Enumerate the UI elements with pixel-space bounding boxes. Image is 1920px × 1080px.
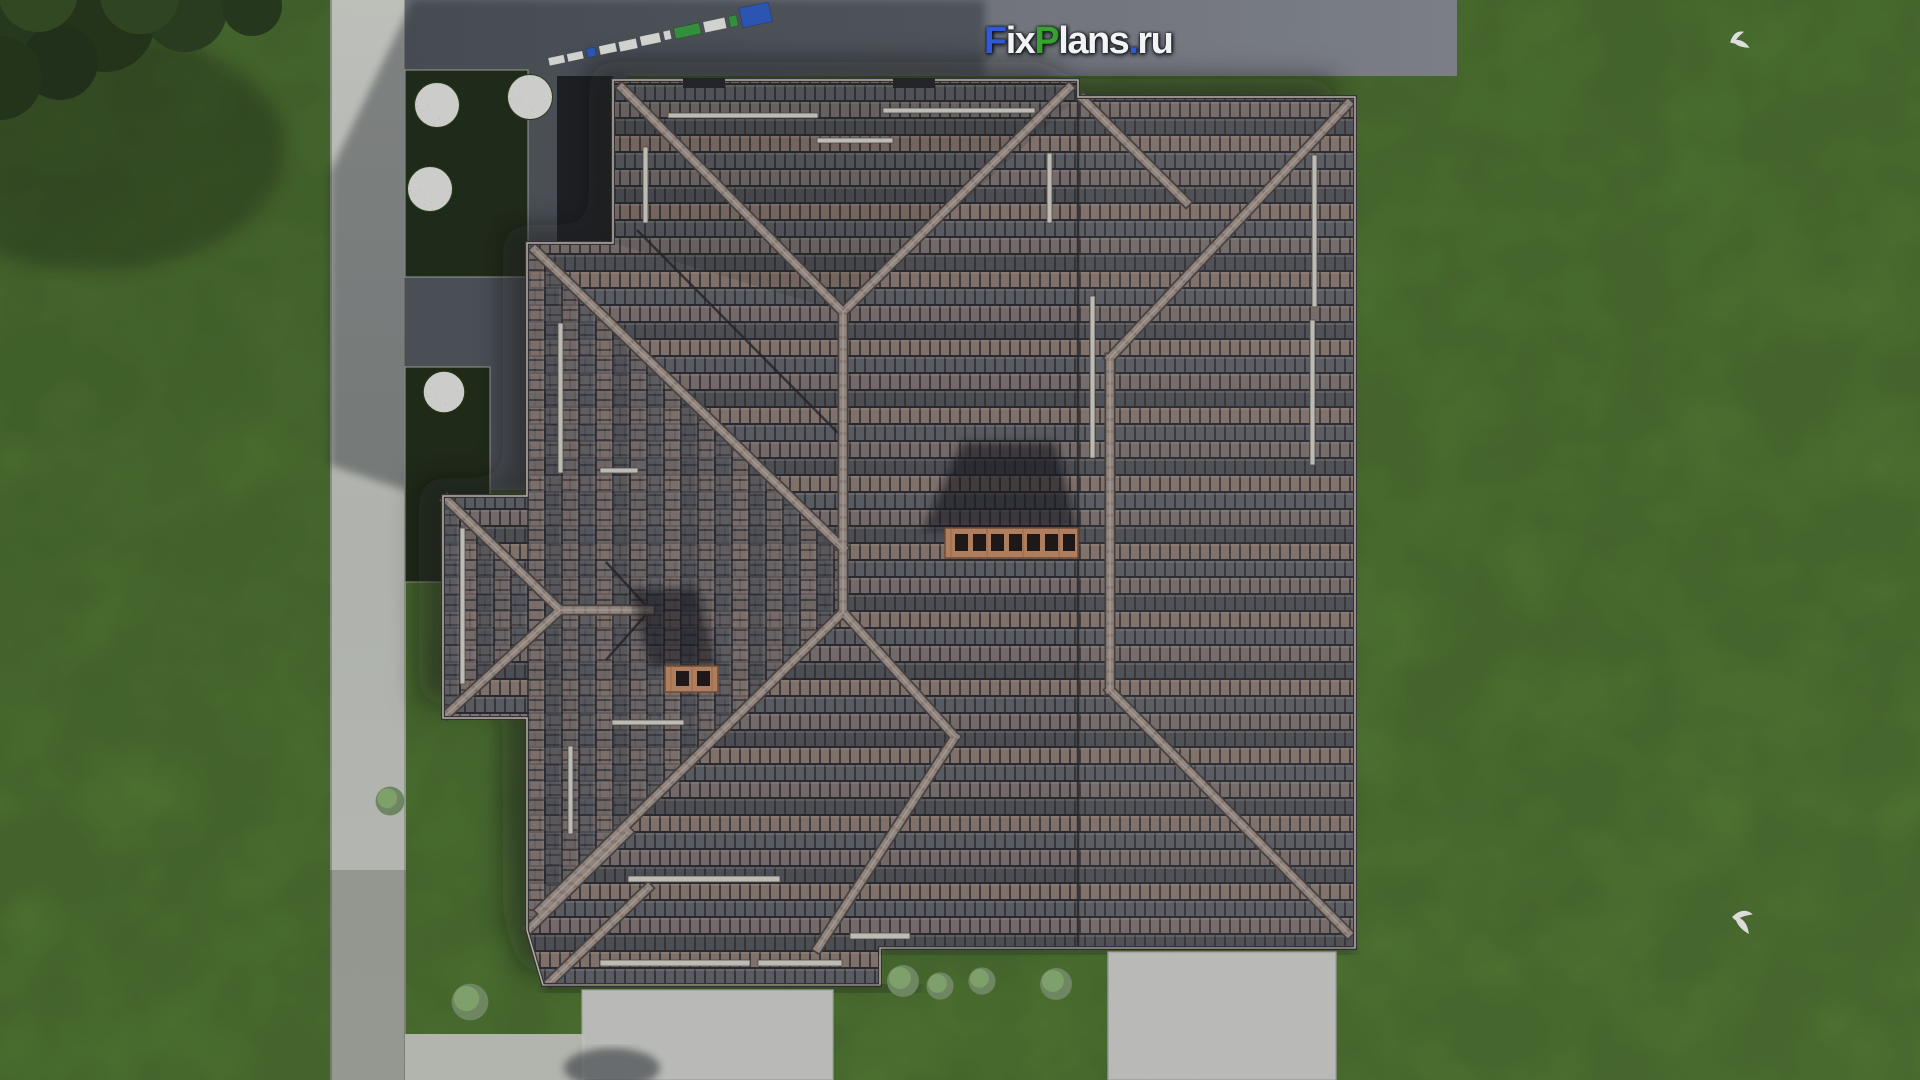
logo-segment: ru [1137,20,1172,62]
logo-segment: lans [1058,20,1128,62]
scene-canvas [0,0,1920,1080]
site-logo: FixPlans.ru [984,20,1172,63]
aerial-render-scene: FixPlans.ru [0,0,1920,1080]
logo-segment: ix [1006,20,1035,62]
logo-segment: P [1034,20,1058,62]
logo-segment: F [984,20,1006,62]
